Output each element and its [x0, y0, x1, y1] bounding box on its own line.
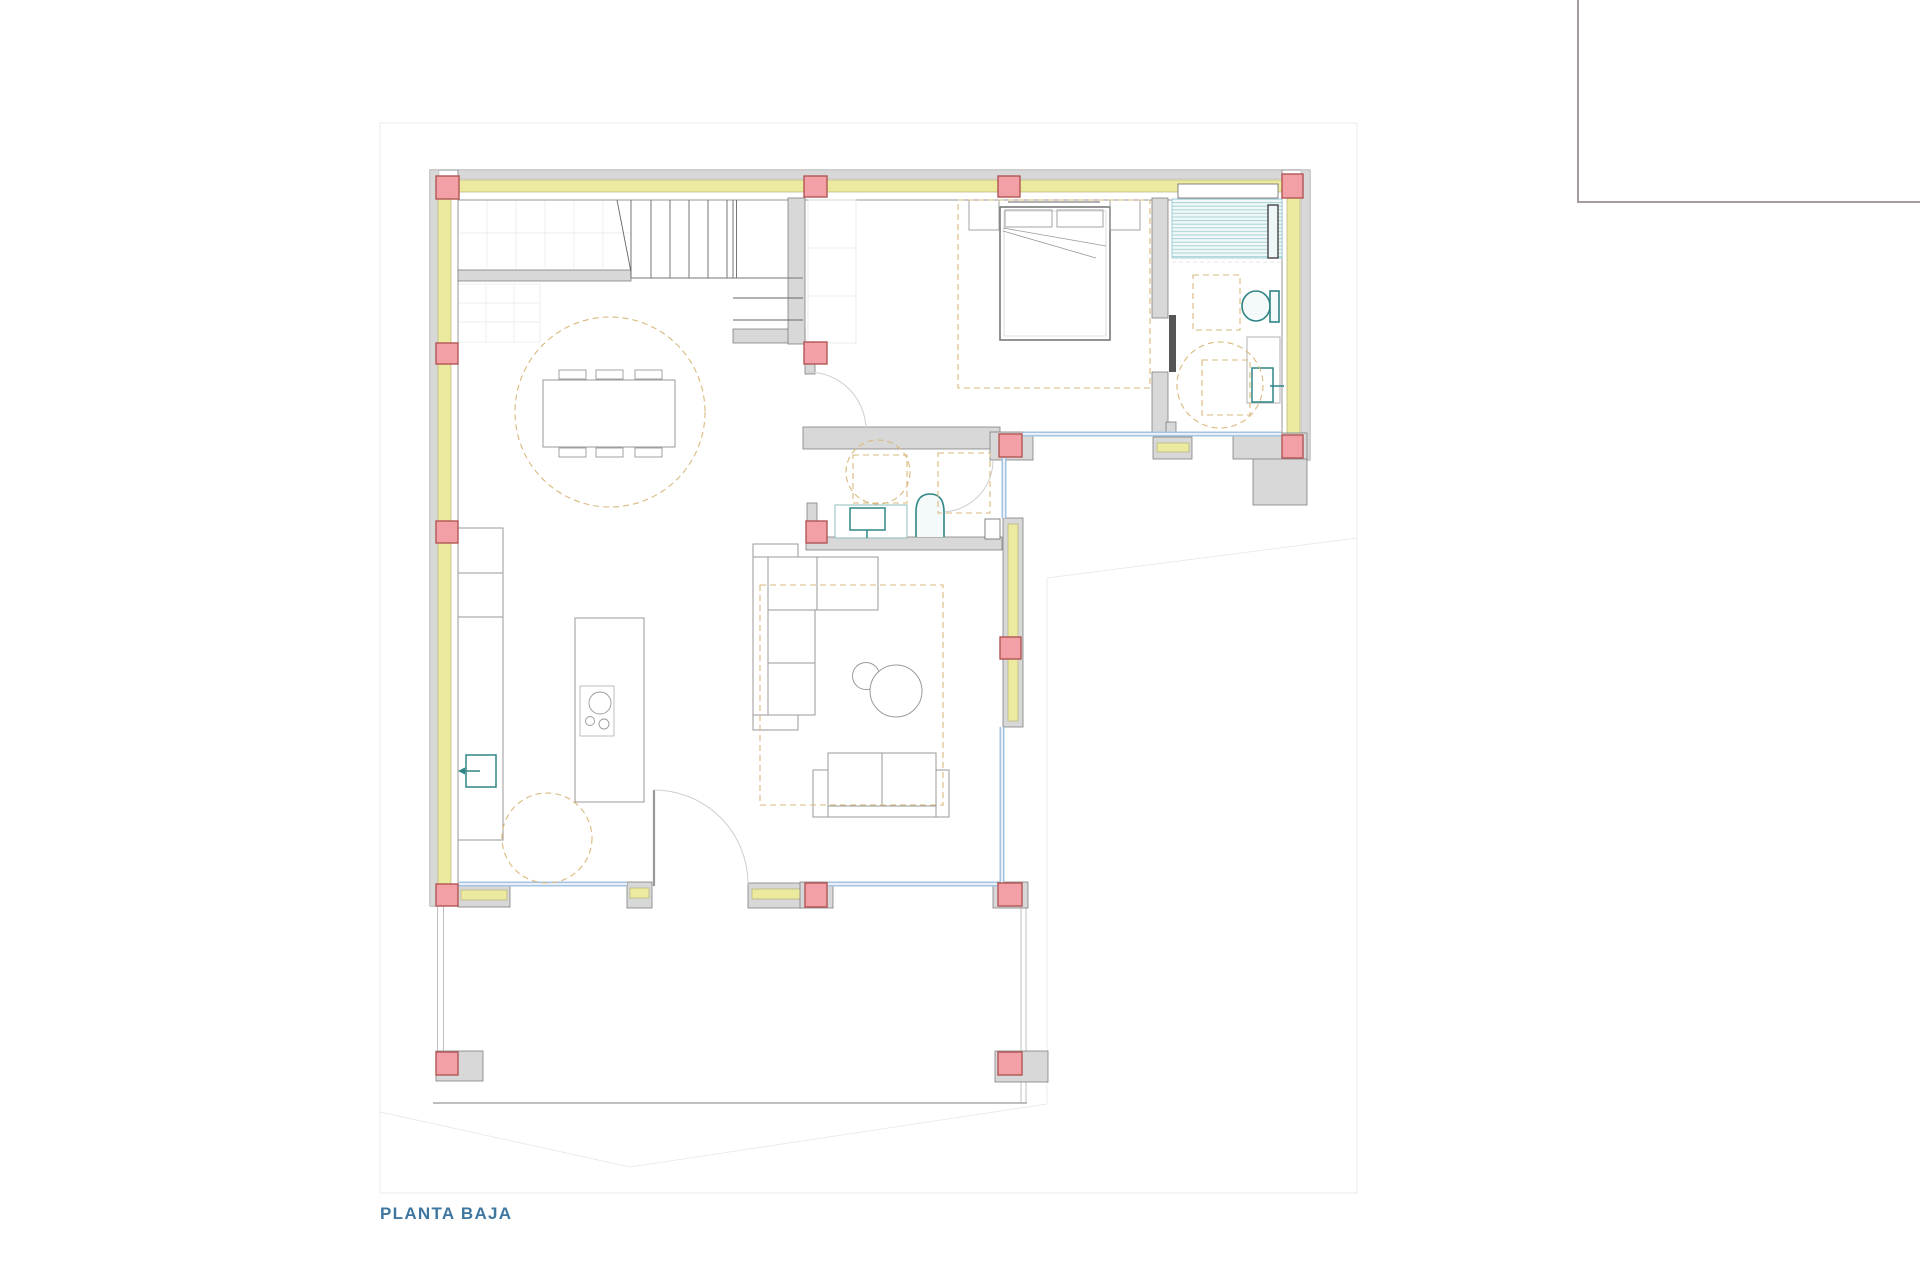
interior-walls — [436, 198, 1307, 1082]
column — [998, 883, 1022, 906]
wc-door-arc — [941, 460, 993, 512]
sofa-seat — [768, 610, 815, 663]
vanity — [835, 505, 907, 538]
bath-guide-rect — [1193, 275, 1240, 330]
sofa2-armrest — [813, 770, 828, 817]
column — [436, 884, 458, 906]
wc-guide-circle — [846, 440, 910, 504]
hall-door-arc — [808, 372, 866, 430]
dining-table — [543, 380, 675, 447]
dining-set — [543, 370, 675, 457]
adjacent-sheet-frame — [1577, 0, 1920, 203]
sofa-seat — [768, 663, 815, 715]
wardrobe — [808, 200, 856, 343]
column — [1282, 435, 1303, 458]
chair — [635, 370, 662, 379]
sofa2-seat — [882, 753, 936, 808]
sofa-seat — [817, 557, 878, 610]
bathroom — [1172, 199, 1284, 403]
kitchen-counter — [458, 617, 503, 840]
wc-guide-rect — [853, 455, 907, 503]
sofa2-back — [828, 806, 936, 817]
bathroom-door-leaf — [1169, 315, 1176, 372]
chair — [596, 370, 623, 379]
chair — [635, 448, 662, 457]
sofa-seat — [768, 557, 817, 610]
column — [436, 176, 459, 199]
structural-columns — [436, 174, 1303, 1075]
terrace — [433, 906, 1027, 1103]
wc-toilet — [916, 494, 944, 537]
shower-glass — [1268, 205, 1278, 258]
floor-plan-title: PLANTA BAJA — [380, 1204, 512, 1224]
column — [436, 521, 458, 543]
floor-plan-sheet: PLANTA BAJA — [0, 0, 1920, 1280]
chair — [559, 370, 586, 379]
bathroom-window — [1178, 184, 1278, 198]
nightstand — [1110, 200, 1140, 230]
bathroom-toilet — [1242, 291, 1270, 321]
bath-guide-rect — [1202, 360, 1250, 415]
wc-room — [835, 494, 944, 538]
kitchen-counter — [458, 528, 503, 573]
column — [998, 176, 1020, 197]
column — [804, 176, 827, 197]
sofa-armrest — [753, 544, 798, 557]
kitchen-counter — [458, 573, 503, 617]
column — [1282, 174, 1303, 198]
kitchen-guide-circle — [502, 793, 592, 883]
nightstand — [969, 200, 999, 230]
sofa-back — [753, 557, 768, 730]
column — [999, 434, 1022, 457]
wc-guide-rect — [938, 453, 990, 513]
shower-tray — [1172, 199, 1282, 258]
staircase — [617, 200, 803, 320]
site-lines — [380, 123, 1357, 1193]
toilet-cistern — [1270, 291, 1279, 322]
column — [436, 343, 458, 364]
sofa2-seat — [828, 753, 882, 808]
column — [804, 342, 827, 364]
column — [1000, 637, 1021, 659]
column — [998, 1052, 1022, 1075]
chair — [559, 448, 586, 457]
column — [436, 1052, 458, 1075]
coffee-table — [870, 665, 922, 717]
column — [805, 883, 827, 907]
column — [806, 521, 827, 543]
bedroom — [808, 200, 1140, 343]
terrace-door-arc — [654, 790, 748, 884]
kitchen-island — [575, 618, 644, 802]
chair — [596, 448, 623, 457]
